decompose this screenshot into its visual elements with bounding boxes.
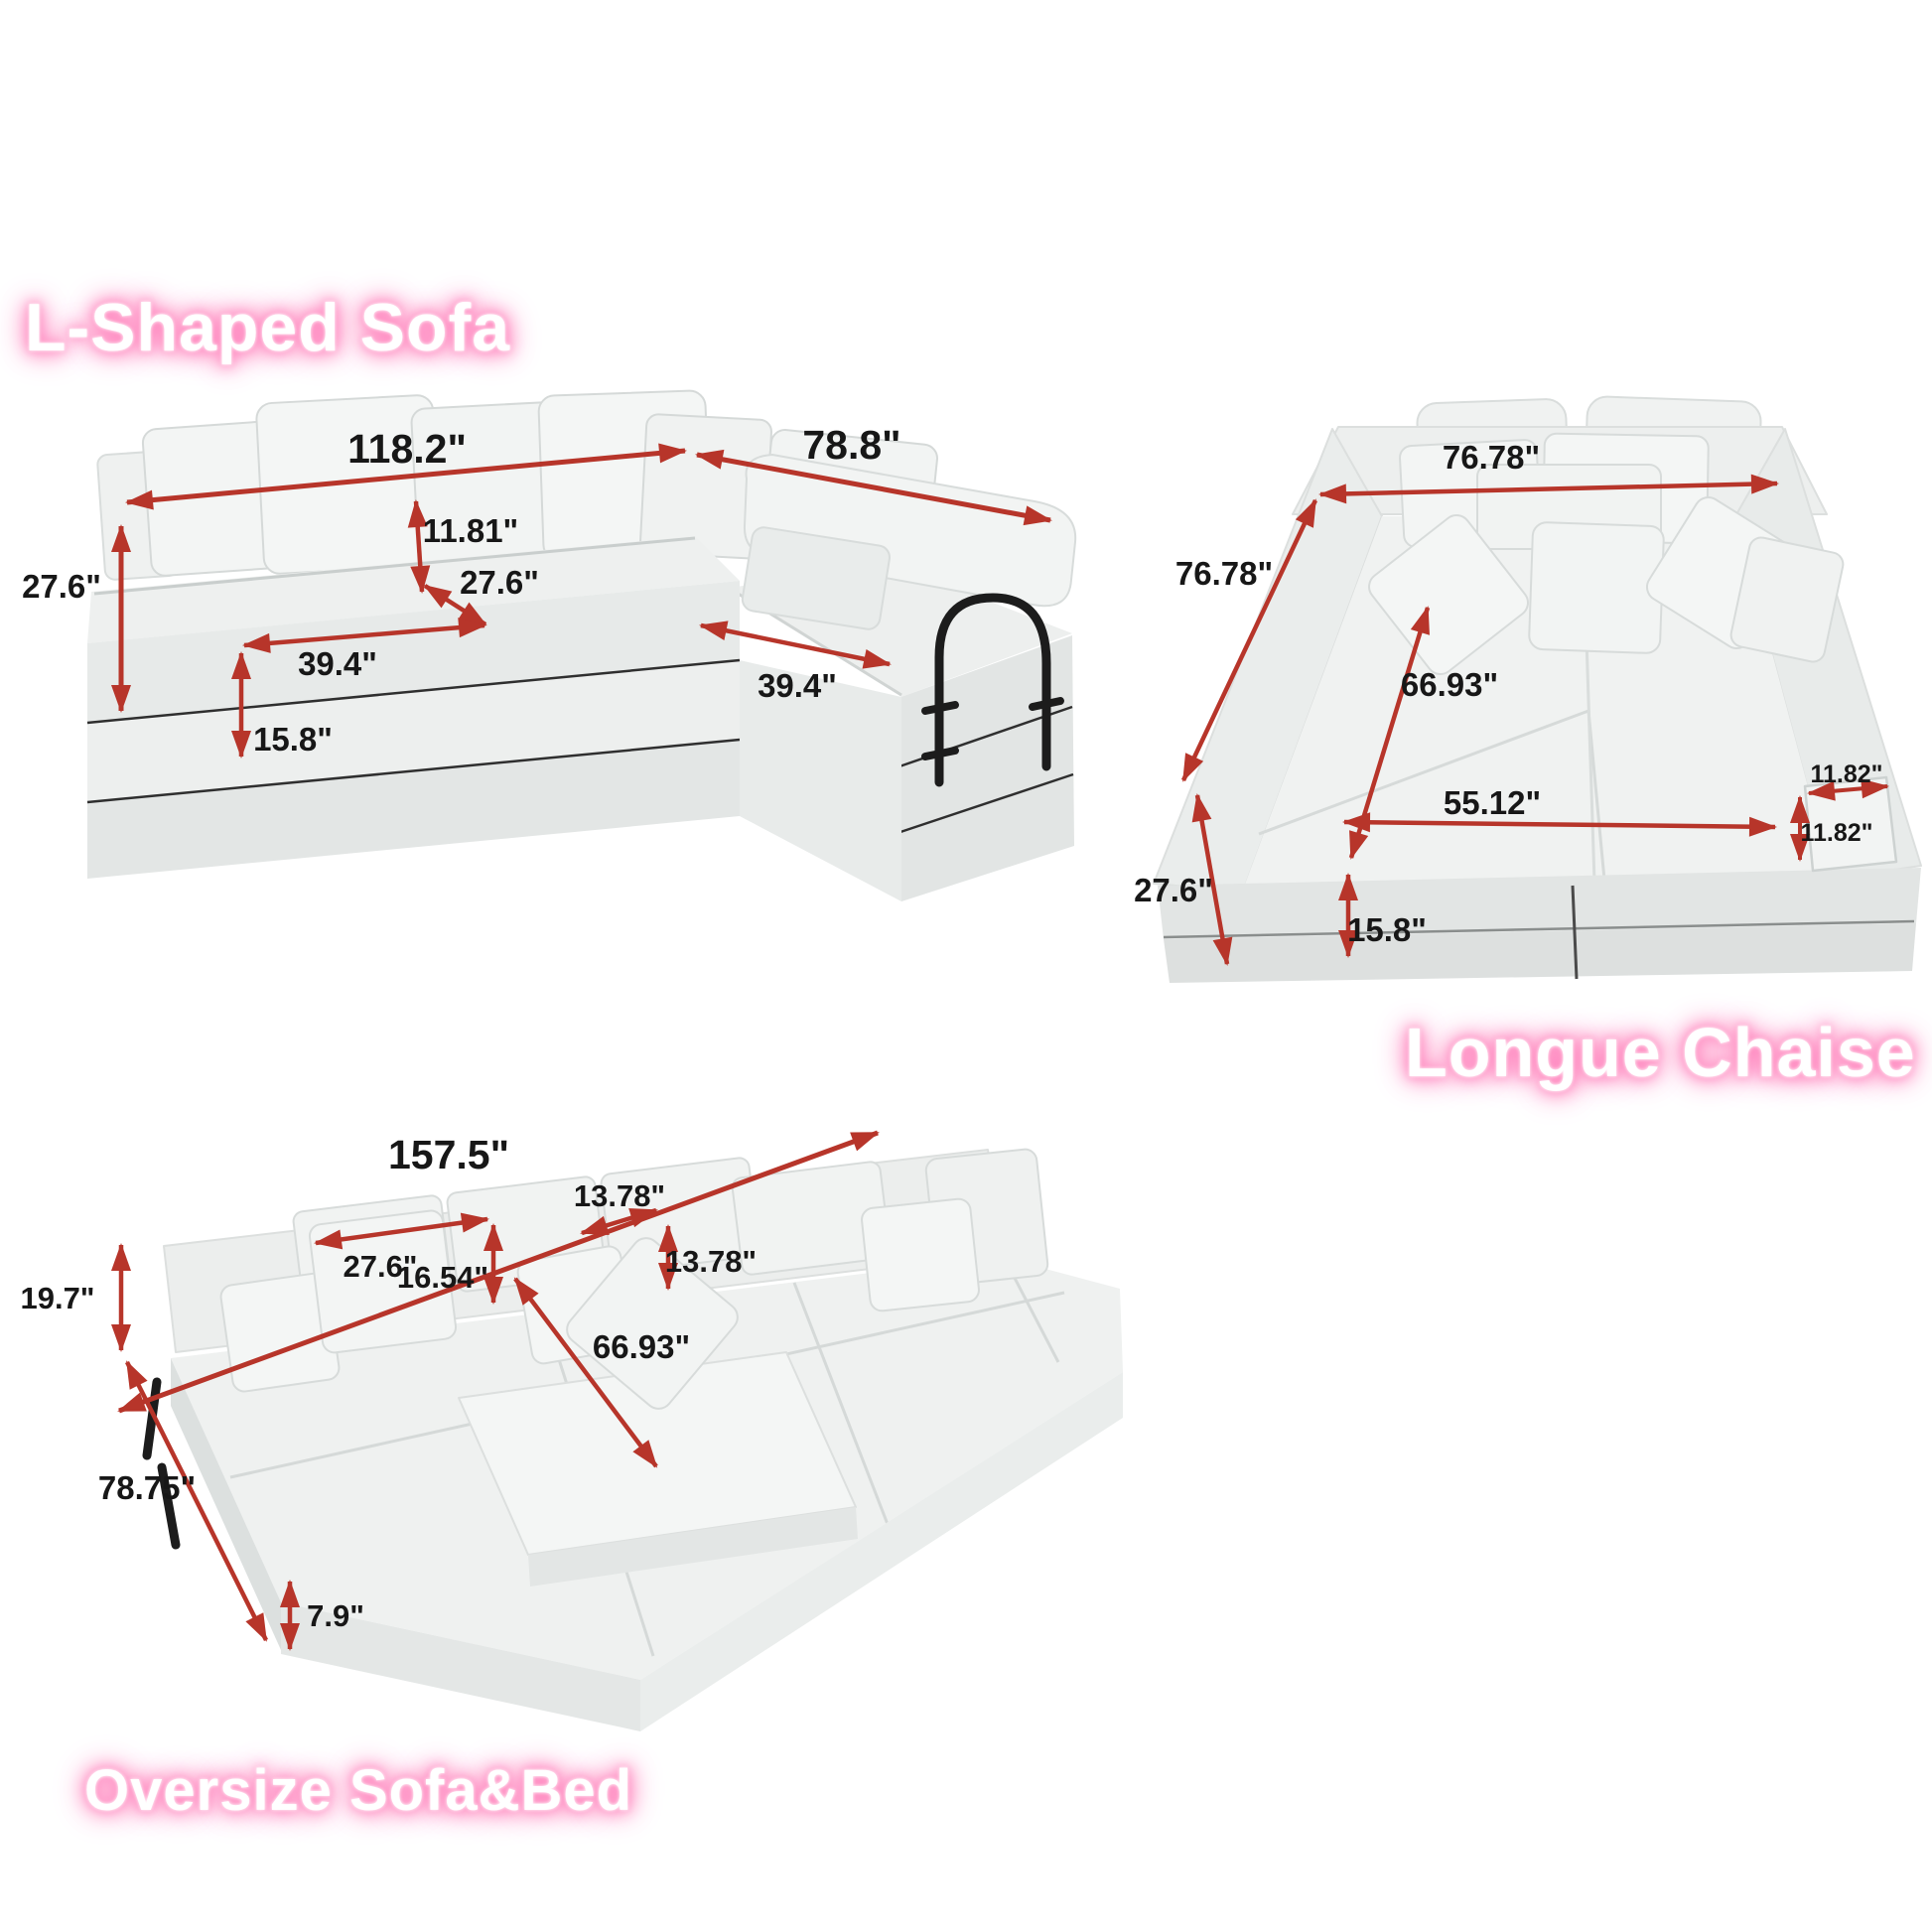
dim-label-total-depth: 76.78" — [1175, 555, 1273, 592]
dim-label-chaise-length: 78.8" — [802, 422, 900, 468]
dim-label-armrest-side: 11.82" — [1800, 819, 1872, 847]
dim-label-total-width: 76.78" — [1443, 439, 1540, 476]
l-shaped-sofa-title: L-Shaped Sofa — [25, 289, 510, 366]
dim-label-pillow-width: 13.78" — [574, 1178, 665, 1213]
dim-label-total-depth: 78.75" — [98, 1469, 196, 1506]
dim-label-total-length: 118.2" — [347, 426, 467, 472]
dim-label-bed-diagonal: 66.93" — [593, 1328, 690, 1365]
dim-label-base-height: 15.8" — [1347, 911, 1427, 948]
dim-label-armrest-top: 11.82" — [1810, 760, 1882, 788]
dim-label-base-height: 15.8" — [253, 721, 333, 758]
dim-label-total-length: 157.5" — [388, 1132, 509, 1177]
dim-label-seat-width: 55.12" — [1444, 784, 1541, 821]
dim-label-pillow-height: 11.81" — [423, 512, 518, 549]
dim-label-overall-height: 27.6" — [1134, 872, 1213, 908]
longue-chaise-illustration — [1154, 396, 1921, 983]
product-dimension-sheet: 118.2" 78.8" 27.6" 11.81" 27.6" 39.4" 39… — [0, 0, 1932, 1932]
dim-label-back-cushion-height: 16.54" — [397, 1260, 488, 1295]
longue-chaise-title: Longue Chaise — [1405, 1013, 1916, 1092]
dim-label-right-seat-width: 39.4" — [758, 667, 837, 704]
dim-label-seat-depth: 27.6" — [460, 564, 539, 601]
dim-label-back-height: 19.7" — [20, 1281, 94, 1315]
dim-label-mattress-height: 7.9" — [307, 1598, 364, 1633]
throw-pillow — [861, 1198, 980, 1312]
oversize-sofa-bed-title: Oversize Sofa&Bed — [84, 1757, 632, 1824]
dim-label-inner-diagonal: 66.93" — [1401, 666, 1498, 703]
dim-label-overall-height: 27.6" — [22, 568, 101, 605]
l-shaped-sofa-illustration — [87, 390, 1075, 901]
dim-label-left-seat-width: 39.4" — [298, 645, 377, 682]
center-pillow — [1529, 522, 1664, 654]
dim-label-pillow-height: 13.78" — [665, 1244, 757, 1279]
